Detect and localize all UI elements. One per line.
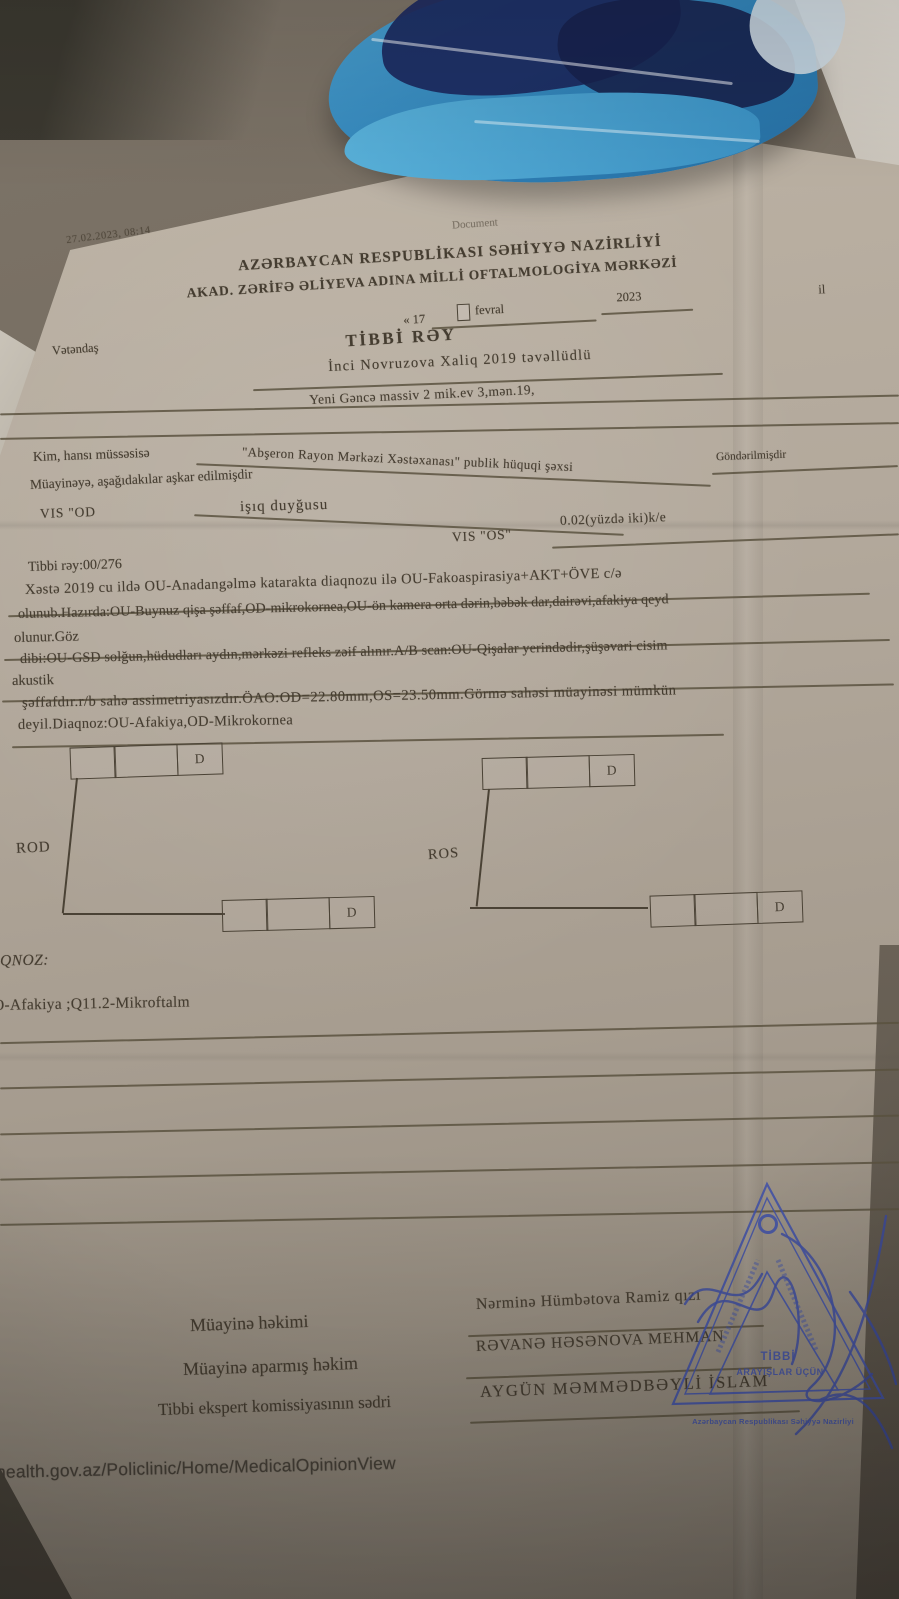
report-line: deyil.Diaqnoz:OU-Afakiya,OD-Mikrokornea [18, 712, 293, 734]
rx-cell-d: D [756, 890, 803, 924]
footer-url: health.gov.az/Policlinic/Home/MedicalOpi… [0, 1453, 396, 1483]
stamp-ring-icon [760, 1216, 777, 1233]
vis-od-label: VIS "OD [40, 504, 96, 522]
rx-cell-d: D [328, 896, 375, 929]
rx-cell [694, 892, 759, 926]
form-title: TİBBİ RƏY [316, 323, 487, 353]
sender-label: Kim, hansı müssəsisə [33, 445, 150, 465]
rule-line [552, 533, 899, 548]
official-stamp: TİBBİ ARAYIŞLAR ÜÇÜN Azərbaycan Respubli… [640, 1172, 899, 1462]
vis-od-value: işıq duyğusu [240, 497, 329, 516]
signature-label: Müayinə aparmış həkim [183, 1353, 359, 1380]
rx-diagram-rod: D D [55, 735, 395, 945]
rx-axis-vertical [476, 789, 490, 907]
stamp-text-line1: TİBBİ [760, 1350, 795, 1363]
exam-intro: Müayinəyə, aşağıdakılar aşkar edilmişdir [30, 466, 253, 493]
vis-os-label: VIS "OS" [452, 526, 513, 545]
rx-axis-horizontal [63, 913, 225, 915]
vis-os-value: 0.02(yüzdə iki)k/e [560, 509, 667, 529]
rx-diagram-ros: D D [462, 728, 822, 943]
stamp-outer-triangle-2 [685, 1198, 870, 1394]
ros-label: ROS [427, 845, 459, 864]
rx-cell [482, 757, 529, 790]
rule-line [0, 1115, 899, 1136]
rx-cell [222, 899, 269, 932]
rule-line [601, 309, 693, 315]
blue-cloth [318, 0, 838, 200]
report-line: olunur.Göz [14, 629, 79, 647]
date-month: fevral [475, 302, 505, 318]
photo-of-medical-document: 27.02.2023, 08:14 Document AZƏRBAYCAN RE… [0, 0, 899, 1599]
rule-line [712, 465, 898, 474]
rx-axis-vertical [62, 778, 78, 913]
report-line: akustik [12, 672, 54, 690]
rx-cell [114, 744, 179, 778]
report-line: olunub.Hazırda:OU-Buynuz qişa şəffaf,OD-… [18, 592, 669, 623]
stamp-side-text-marks [718, 1260, 758, 1352]
document-content: 27.02.2023, 08:14 Document AZƏRBAYCAN RE… [0, 0, 899, 1599]
rx-cell [526, 755, 591, 789]
stamp-footer-text: Azərbaycan Respublikası Səhiyyə Nazirliy… [692, 1417, 854, 1426]
date-year: 2023 [616, 289, 642, 305]
signature-scribble [685, 1216, 896, 1448]
rx-cell [266, 897, 331, 931]
document-watermark: Document [452, 216, 499, 231]
diagnosis-value: O-Afakiya ;Q11.2-Mikroftalm [0, 994, 190, 1015]
signature-label: Tibbi ekspert komissiyasının sədri [158, 1392, 392, 1420]
photo-timestamp: 27.02.2023, 08:14 [66, 225, 152, 246]
signature-label: Müayinə həkimi [190, 1311, 309, 1336]
diagnosis-label: QNOZ: [0, 952, 49, 971]
sender-value: "Abşeron Rayon Mərkəzi Xəstəxanası" publ… [242, 444, 574, 475]
rx-cell-d: D [176, 742, 223, 776]
report-ref: Tibbi rəy:00/276 [28, 557, 122, 576]
date-suffix: il [818, 282, 826, 297]
rule-line [0, 422, 899, 439]
rod-label: ROD [16, 839, 52, 858]
rx-cell [69, 746, 116, 780]
rule-line [0, 1069, 899, 1090]
sender-suffix: Göndərilmişdir [716, 449, 787, 463]
stamp-text-line2: ARAYIŞLAR ÜÇÜN [736, 1367, 823, 1377]
date-open: « 17 [403, 312, 426, 328]
rx-axis-horizontal [470, 907, 648, 909]
citizen-label: Vətəndaş [52, 340, 99, 358]
rx-cell-d: D [588, 754, 635, 787]
report-line: dibi:OU-GSD solğun,hüdudları aydın,mərkə… [20, 638, 668, 668]
rule-line [0, 1022, 899, 1044]
report-line: şəffafdır.r/b sahə assimetriyasızdır.ÖAO… [22, 682, 677, 712]
date-checkbox [457, 304, 471, 322]
rx-cell [649, 894, 696, 928]
